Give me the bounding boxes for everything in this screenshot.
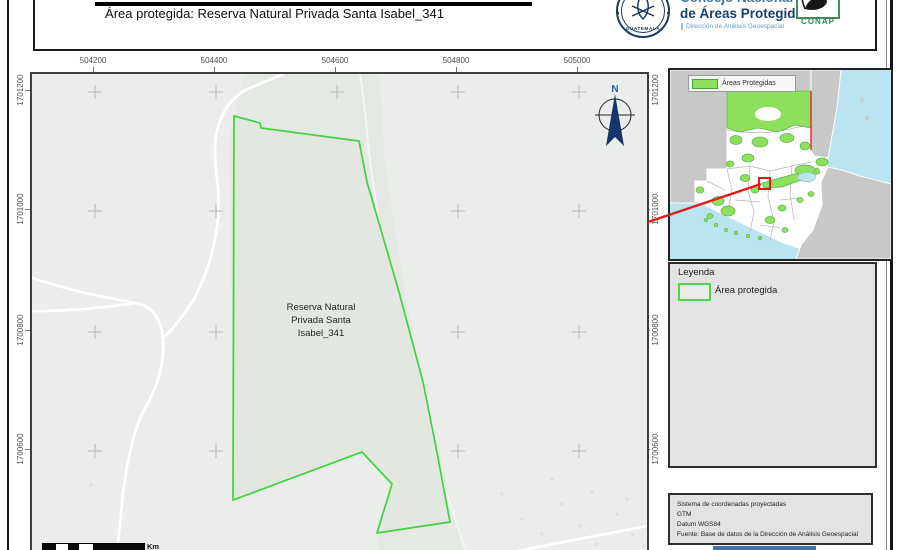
x-axis-label: 504600 (305, 56, 365, 65)
island (860, 98, 863, 101)
north-label: N (611, 84, 618, 95)
legend-box: Leyenda Área protegida (668, 262, 877, 468)
road-line (32, 277, 163, 550)
main-map: Reserva Natural Privada Santa Isabel_341… (30, 72, 649, 550)
info-line: GTM (677, 510, 871, 520)
scale-segment (93, 544, 144, 550)
x-axis-label: 504800 (426, 56, 486, 65)
coordinate-info-box: Sistema de coordenadas proyectadas GTM D… (668, 493, 873, 545)
scale-segment (68, 544, 79, 550)
info-line: Sistema de coordenadas proyectadas (677, 500, 871, 510)
conap-label: CONAP (794, 17, 842, 26)
island (865, 116, 869, 120)
area-label-line: Reserva Natural (246, 301, 396, 314)
overview-legend-label: Áreas Protegidas (722, 80, 776, 87)
org-subtitle: Dirección de Análisis Geoespacial (681, 23, 784, 30)
scale-segment (56, 544, 68, 550)
overview-legend-swatch (692, 79, 718, 89)
x-axis-label: 504200 (63, 56, 123, 65)
road-line (499, 526, 647, 550)
north-arrow-icon: N (588, 78, 640, 148)
scale-unit-label: Km (147, 542, 159, 550)
org-name-line2: de Áreas Protegidas (680, 6, 811, 21)
area-label-line: Privada Santa (246, 314, 396, 327)
legend-item-label: Área protegida (715, 285, 777, 296)
guatemala-seal-icon: GUATEMALA (614, 0, 672, 40)
road-line (32, 303, 136, 311)
seal-text: GUATEMALA (626, 26, 660, 31)
y-axis-label-right: 1700800 (651, 311, 661, 349)
legend-title: Leyenda (678, 267, 714, 278)
title-bar: Área protegida: Reserva Natural Privada … (33, 0, 877, 51)
peten-clearing (755, 107, 781, 121)
info-line: Datum WGS84 (677, 520, 871, 530)
y-axis-label-right: 1700600 (651, 430, 661, 468)
legend-swatch (678, 283, 711, 301)
page-title: Área protegida: Reserva Natural Privada … (92, 6, 457, 21)
page-border-left (7, 0, 9, 550)
scale-bar (42, 543, 145, 550)
scale-segment (79, 544, 93, 550)
protected-area-label: Reserva Natural Privada Santa Isabel_341 (246, 301, 396, 340)
x-axis-label: 504400 (184, 56, 244, 65)
location-leader-line (640, 165, 780, 235)
footer-blue-bar (713, 546, 816, 550)
overview-legend: Áreas Protegidas (688, 75, 796, 92)
org-name-line1: Consejo Nacional (680, 0, 793, 5)
lake-izabal (798, 173, 816, 182)
scale-segment (43, 544, 56, 550)
area-label-line: Isabel_341 (246, 327, 396, 340)
terrain-speckles (90, 478, 646, 548)
map-layout-page: Área protegida: Reserva Natural Privada … (0, 0, 900, 550)
info-line: Fuente: Base de datos de la Dirección de… (677, 530, 871, 540)
y-axis-label-right: 1701200 (651, 71, 661, 109)
x-axis-label: 505000 (547, 56, 607, 65)
